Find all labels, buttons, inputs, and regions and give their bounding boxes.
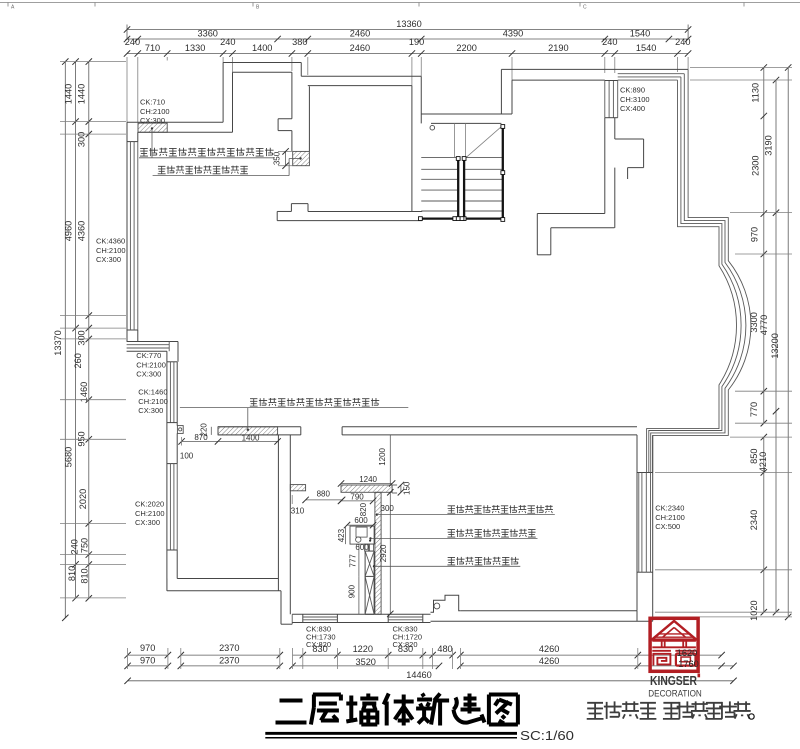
- svg-text:600: 600: [354, 516, 368, 525]
- svg-text:260: 260: [73, 353, 83, 368]
- svg-text:CK:770: CK:770: [136, 351, 161, 360]
- svg-text:4210: 4210: [758, 452, 768, 472]
- svg-text:240: 240: [70, 539, 80, 554]
- svg-text:2020: 2020: [78, 489, 88, 509]
- svg-text:CK:2020: CK:2020: [135, 500, 164, 509]
- svg-text:380: 380: [292, 37, 307, 47]
- svg-text:300: 300: [77, 330, 87, 345]
- svg-text:CX:820: CX:820: [393, 640, 418, 649]
- svg-text:CX:400: CX:400: [620, 104, 645, 113]
- svg-text:13200: 13200: [770, 333, 780, 359]
- svg-text:CH:2100: CH:2100: [135, 509, 165, 518]
- svg-text:220: 220: [200, 423, 209, 437]
- svg-text:100: 100: [180, 451, 194, 460]
- svg-text:300: 300: [381, 504, 395, 513]
- svg-text:777: 777: [348, 554, 357, 568]
- svg-text:4390: 4390: [503, 29, 523, 39]
- svg-text:1540: 1540: [630, 29, 650, 39]
- svg-text:1020: 1020: [749, 600, 759, 620]
- svg-text:423: 423: [337, 528, 346, 542]
- svg-text:4960: 4960: [63, 221, 73, 241]
- svg-text:790: 790: [350, 492, 364, 501]
- svg-text:2370: 2370: [219, 656, 239, 666]
- svg-text:3360: 3360: [197, 29, 217, 39]
- svg-text:810: 810: [80, 568, 90, 583]
- svg-text:1540: 1540: [636, 43, 656, 53]
- svg-text:1400: 1400: [242, 433, 260, 442]
- svg-text:CH:2100: CH:2100: [136, 360, 166, 369]
- svg-text:2190: 2190: [548, 43, 568, 53]
- svg-text:13370: 13370: [53, 330, 63, 356]
- svg-text:1400: 1400: [252, 43, 272, 53]
- svg-text:DECORATION: DECORATION: [648, 689, 702, 699]
- svg-text:CH:2100: CH:2100: [140, 107, 170, 116]
- svg-text:SC:1/60: SC:1/60: [520, 729, 574, 743]
- svg-text:900: 900: [348, 584, 357, 598]
- svg-text:1440: 1440: [77, 84, 87, 104]
- svg-text:2460: 2460: [350, 43, 370, 53]
- svg-text:2340: 2340: [749, 510, 759, 530]
- svg-text:1460: 1460: [79, 382, 89, 402]
- svg-text:3520: 3520: [355, 657, 375, 667]
- svg-text:CX:500: CX:500: [655, 522, 680, 531]
- svg-text:2200: 2200: [456, 43, 476, 53]
- svg-text:CK:4360: CK:4360: [96, 237, 125, 246]
- svg-text:C: C: [583, 5, 587, 11]
- svg-text:3190: 3190: [764, 135, 774, 155]
- svg-text:750: 750: [80, 538, 90, 553]
- svg-text:350: 350: [273, 151, 282, 165]
- svg-text:1440: 1440: [63, 84, 73, 104]
- svg-text:2920: 2920: [379, 544, 388, 562]
- svg-text:2300: 2300: [751, 155, 761, 175]
- svg-text:KINGSER: KINGSER: [650, 673, 697, 688]
- svg-text:480: 480: [437, 644, 452, 654]
- svg-text:2370: 2370: [219, 643, 239, 653]
- svg-text:770: 770: [749, 402, 759, 417]
- svg-text:CX:300: CX:300: [136, 370, 161, 379]
- svg-text:600: 600: [355, 543, 369, 552]
- svg-text:710: 710: [145, 43, 160, 53]
- svg-text:970: 970: [750, 227, 760, 242]
- svg-text:1620: 1620: [677, 648, 697, 658]
- svg-text:CK:890: CK:890: [620, 86, 645, 95]
- svg-text:CH:2100: CH:2100: [138, 397, 168, 406]
- svg-text:13360: 13360: [396, 19, 422, 29]
- svg-text:150: 150: [403, 481, 412, 495]
- svg-text:4260: 4260: [539, 644, 559, 654]
- svg-text:4260: 4260: [539, 656, 559, 666]
- svg-text:CX:820: CX:820: [306, 640, 331, 649]
- svg-text:970: 970: [140, 656, 155, 666]
- svg-text:4360: 4360: [77, 221, 87, 241]
- svg-text:5680: 5680: [63, 447, 73, 467]
- svg-text:CH:2100: CH:2100: [96, 246, 126, 255]
- svg-text:1200: 1200: [378, 447, 387, 465]
- svg-text:CH:2100: CH:2100: [655, 513, 685, 522]
- svg-text:CX:300: CX:300: [96, 255, 121, 264]
- svg-text:240: 240: [602, 37, 617, 47]
- svg-text:CK:2340: CK:2340: [655, 504, 684, 513]
- svg-text:1130: 1130: [751, 83, 761, 103]
- svg-text:810: 810: [67, 566, 77, 581]
- svg-text:14460: 14460: [406, 670, 432, 680]
- svg-text:CH:3100: CH:3100: [620, 95, 650, 104]
- svg-text:CX:300: CX:300: [138, 406, 163, 415]
- svg-text:CK:710: CK:710: [140, 98, 165, 107]
- svg-text:970: 970: [140, 643, 155, 653]
- svg-text:1760: 1760: [678, 659, 698, 669]
- svg-text:1240: 1240: [359, 475, 377, 484]
- svg-text:CK:1460: CK:1460: [138, 388, 167, 397]
- svg-text:820: 820: [359, 502, 368, 516]
- svg-text:CX:300: CX:300: [140, 116, 165, 125]
- svg-text:880: 880: [317, 489, 331, 498]
- svg-text:240: 240: [220, 37, 235, 47]
- svg-text:2460: 2460: [350, 29, 370, 39]
- svg-text:CX:300: CX:300: [135, 518, 160, 527]
- svg-text:1220: 1220: [353, 644, 373, 654]
- svg-text:1330: 1330: [185, 43, 205, 53]
- svg-text:4770: 4770: [759, 315, 769, 335]
- svg-text:190: 190: [409, 37, 424, 47]
- svg-text:310: 310: [291, 506, 305, 515]
